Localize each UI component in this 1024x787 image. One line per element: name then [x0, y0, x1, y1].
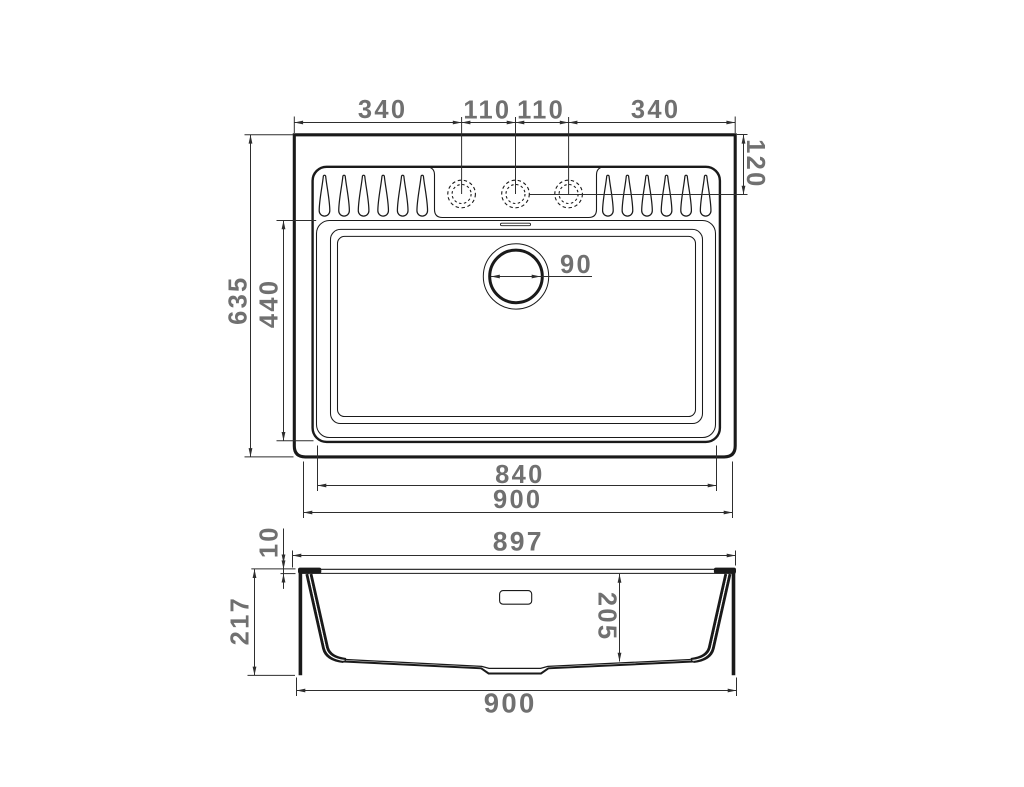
- svg-text:90: 90: [560, 251, 593, 279]
- svg-text:110: 110: [463, 97, 511, 125]
- svg-text:900: 900: [484, 688, 537, 719]
- svg-text:635: 635: [224, 275, 252, 324]
- svg-text:110: 110: [517, 97, 565, 125]
- svg-text:440: 440: [255, 279, 283, 328]
- svg-text:217: 217: [226, 596, 254, 645]
- svg-text:897: 897: [493, 526, 544, 556]
- svg-text:10: 10: [256, 525, 284, 558]
- svg-text:340: 340: [358, 96, 407, 124]
- svg-text:120: 120: [741, 139, 769, 188]
- svg-text:205: 205: [593, 592, 621, 641]
- svg-text:340: 340: [631, 96, 680, 124]
- svg-text:900: 900: [493, 486, 542, 514]
- svg-text:840: 840: [495, 461, 544, 489]
